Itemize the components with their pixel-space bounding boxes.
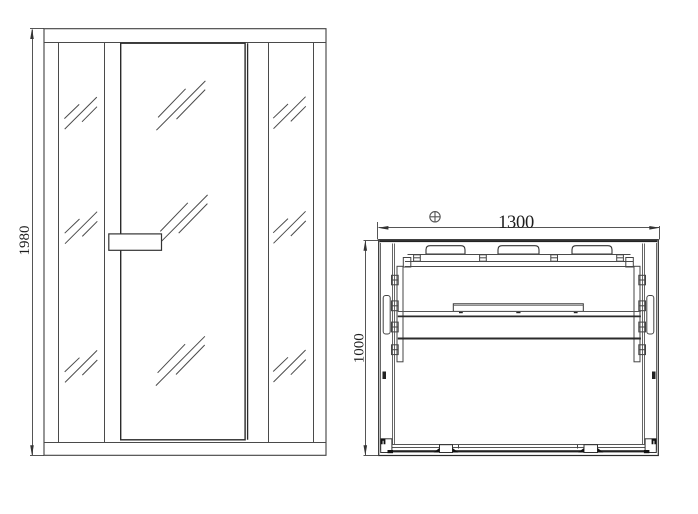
svg-text:1300: 1300	[498, 213, 534, 233]
svg-text:1000: 1000	[351, 333, 367, 363]
svg-text:1980: 1980	[17, 226, 33, 256]
